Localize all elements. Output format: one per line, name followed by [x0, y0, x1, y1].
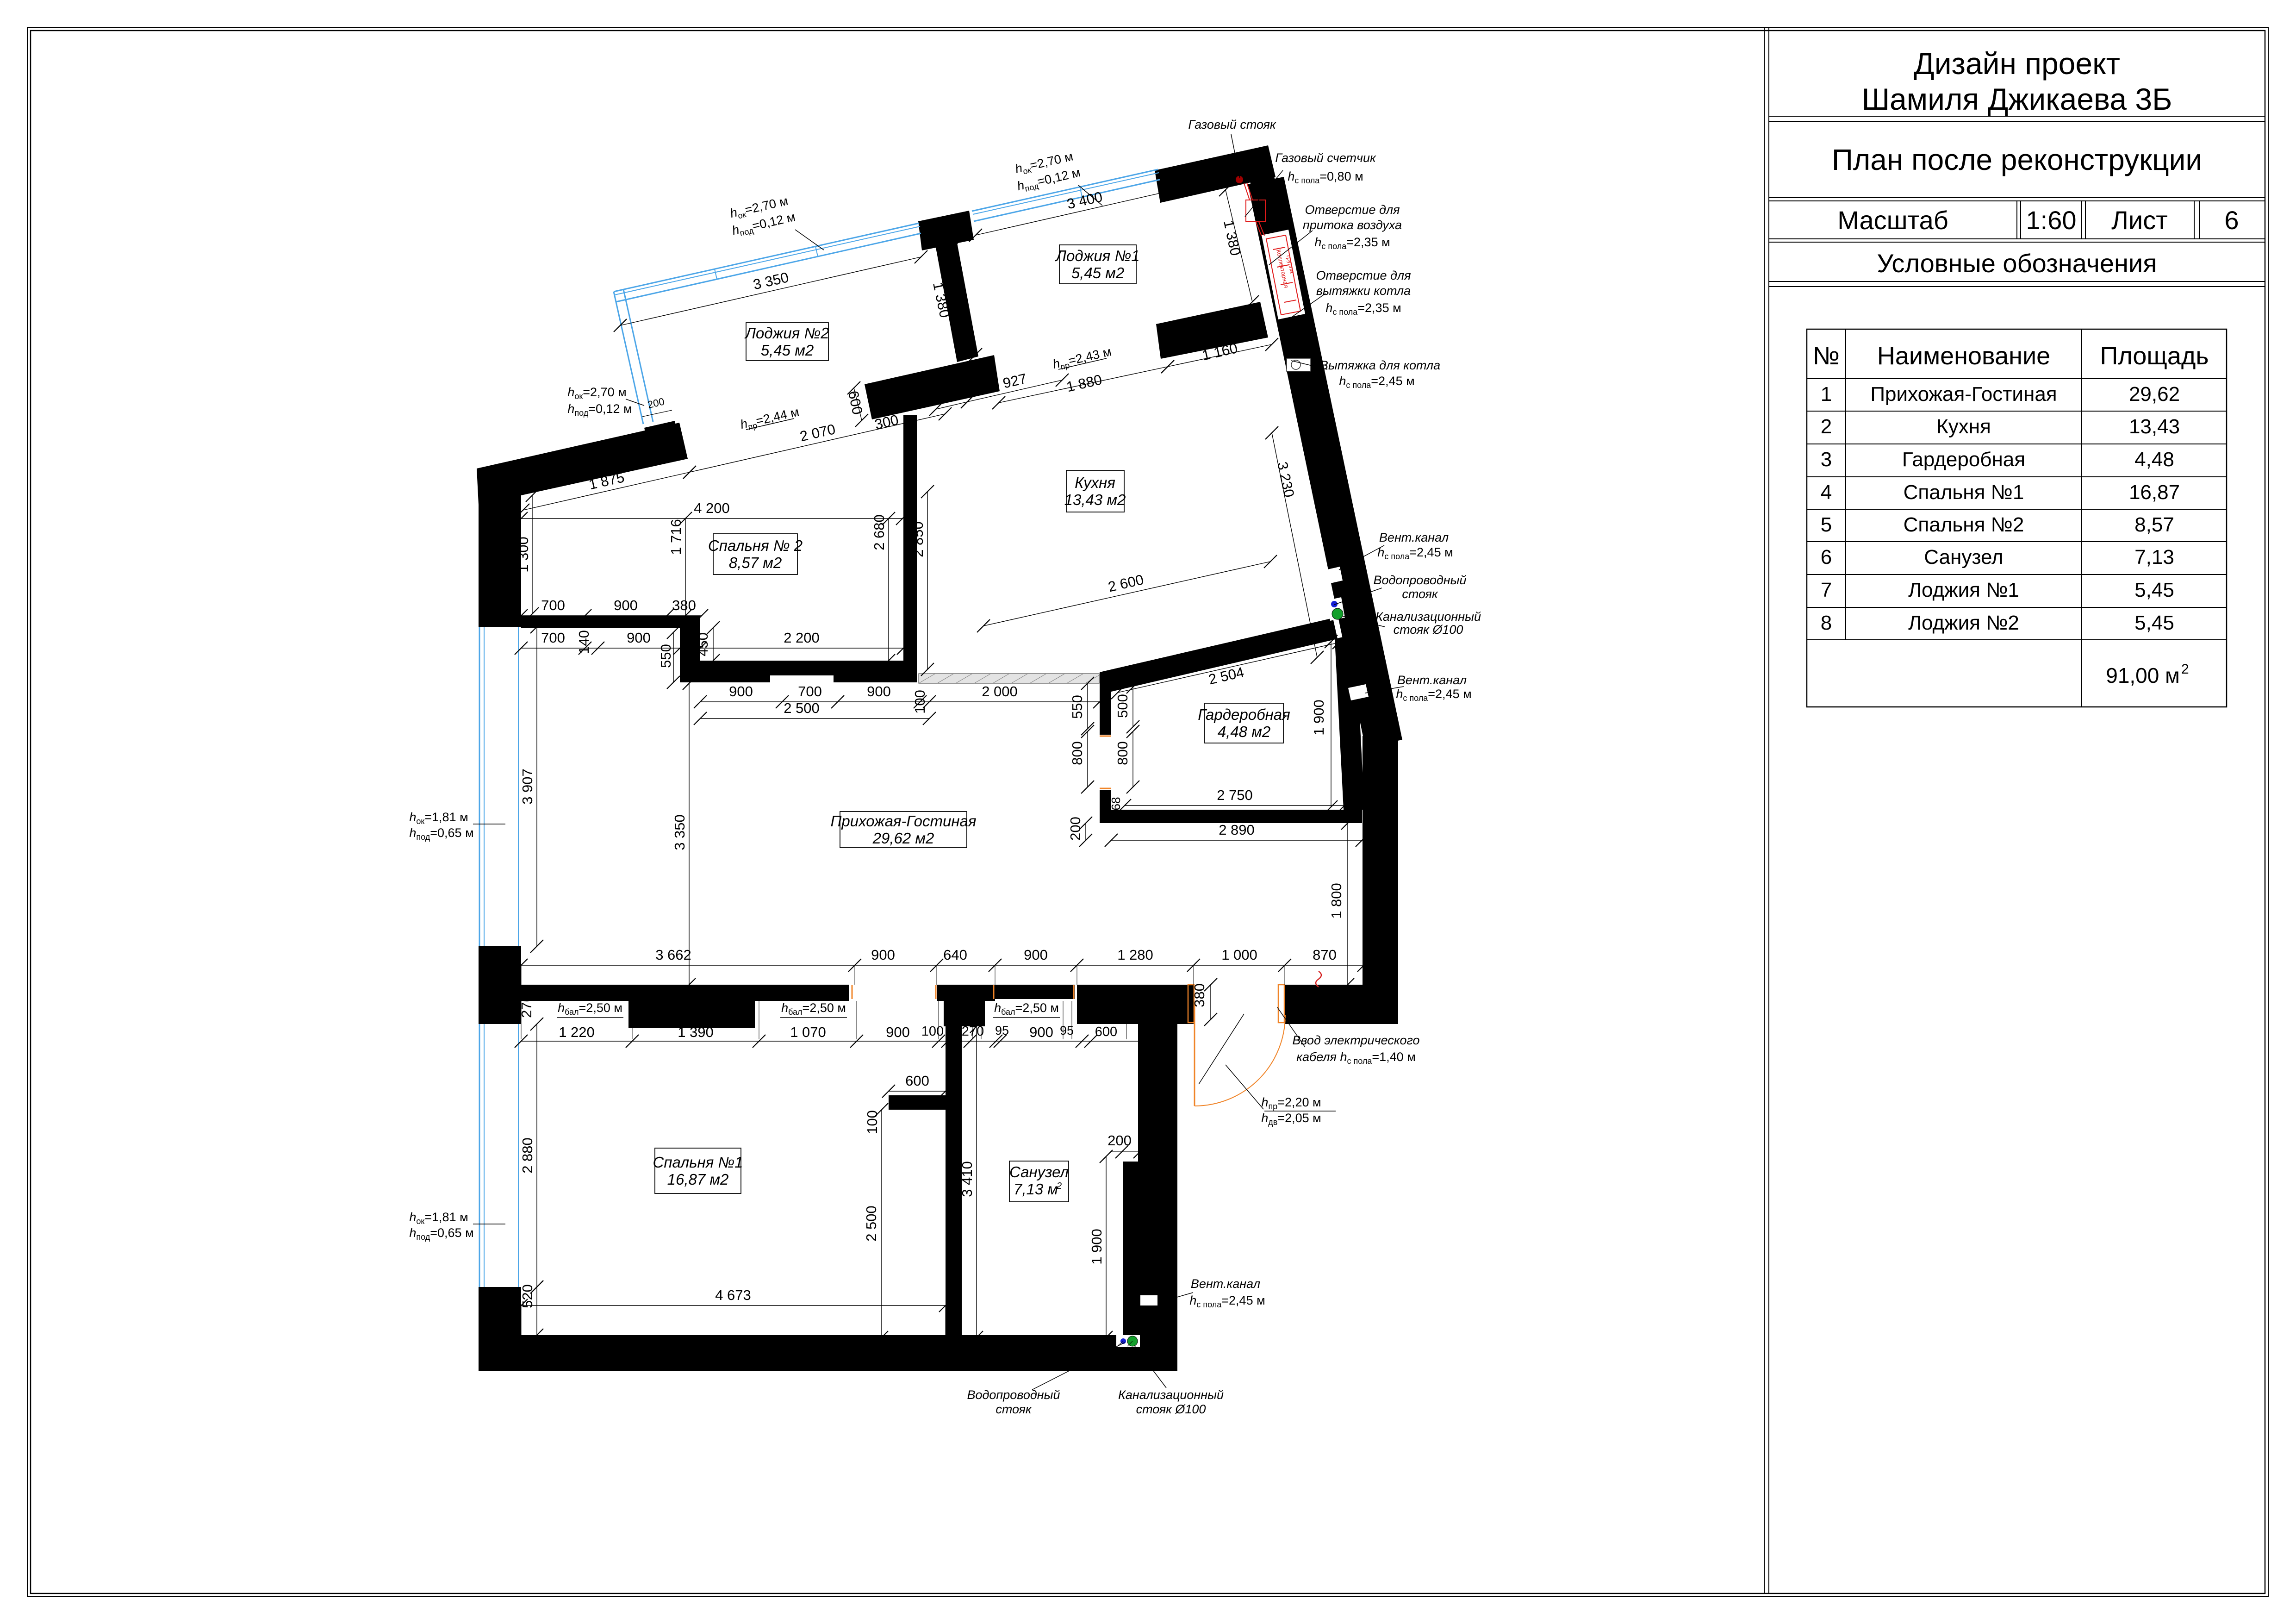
svg-text:16,87 м2: 16,87 м2	[667, 1171, 729, 1188]
svg-text:2 000: 2 000	[982, 683, 1018, 700]
svg-text:стояк: стояк	[996, 1402, 1032, 1416]
svg-text:Спальня № 2: Спальня № 2	[708, 537, 803, 554]
svg-text:550: 550	[1069, 695, 1085, 719]
svg-text:Площадь: Площадь	[2100, 342, 2209, 370]
svg-text:4,48 м2: 4,48 м2	[1218, 723, 1270, 740]
svg-text:Водопроводный: Водопроводный	[967, 1388, 1060, 1402]
svg-text:Водопроводный: Водопроводный	[1373, 573, 1466, 587]
svg-text:29,62 м2: 29,62 м2	[872, 830, 934, 847]
svg-text:Отверстие для: Отверстие для	[1305, 203, 1400, 217]
svg-text:2 200: 2 200	[784, 630, 820, 646]
svg-text:3 410: 3 410	[959, 1161, 975, 1197]
svg-text:2 500: 2 500	[863, 1206, 879, 1242]
svg-text:600: 600	[1095, 1024, 1117, 1039]
svg-text:2: 2	[1821, 415, 1832, 438]
svg-text:План после реконструкции: План после реконструкции	[1832, 143, 2202, 176]
svg-text:640: 640	[943, 947, 967, 963]
svg-text:900: 900	[1029, 1024, 1053, 1040]
svg-text:5,45 м2: 5,45 м2	[1071, 264, 1124, 281]
svg-text:Вент.канал: Вент.канал	[1379, 531, 1449, 544]
svg-text:1 300: 1 300	[515, 537, 531, 573]
svg-text:1 716: 1 716	[668, 519, 684, 555]
svg-text:2 850: 2 850	[910, 521, 926, 557]
svg-text:450: 450	[695, 632, 711, 656]
svg-text:900: 900	[729, 683, 753, 700]
svg-text:800: 800	[1069, 741, 1085, 765]
svg-text:270: 270	[962, 1024, 984, 1039]
svg-text:380: 380	[672, 597, 696, 613]
svg-text:Лоджия №1: Лоджия №1	[1055, 247, 1139, 264]
svg-text:вытяжки котла: вытяжки котла	[1316, 284, 1411, 298]
svg-text:стояк: стояк	[1402, 587, 1438, 601]
svg-text:7,13 м: 7,13 м	[1014, 1181, 1058, 1198]
svg-text:200: 200	[1067, 817, 1083, 841]
svg-text:1 280: 1 280	[1117, 947, 1153, 963]
svg-text:29,62: 29,62	[2129, 383, 2180, 406]
svg-text:1 900: 1 900	[1311, 700, 1327, 736]
svg-text:7,13: 7,13	[2134, 546, 2174, 568]
svg-text:95: 95	[1060, 1024, 1074, 1037]
svg-text:6: 6	[2224, 206, 2239, 235]
svg-text:стояк Ø100: стояк Ø100	[1136, 1402, 1206, 1416]
svg-text:1 220: 1 220	[559, 1024, 595, 1040]
svg-text:700: 700	[798, 683, 822, 700]
svg-text:100: 100	[912, 690, 928, 714]
svg-text:Спальня №1: Спальня №1	[653, 1154, 743, 1171]
svg-text:900: 900	[614, 597, 638, 613]
svg-text:Спальня №1: Спальня №1	[1904, 481, 2024, 504]
svg-text:500: 500	[1114, 694, 1131, 718]
svg-text:1 070: 1 070	[790, 1024, 826, 1040]
svg-text:900: 900	[871, 947, 895, 963]
svg-text:Прихожая-Гостиная: Прихожая-Гостиная	[831, 812, 977, 830]
svg-text:5,45: 5,45	[2134, 579, 2174, 601]
svg-text:2 500: 2 500	[784, 700, 820, 716]
svg-text:Гардеробная: Гардеробная	[1198, 706, 1290, 723]
svg-text:2 680: 2 680	[871, 514, 887, 550]
svg-text:600: 600	[905, 1073, 929, 1089]
svg-text:380: 380	[1191, 983, 1207, 1007]
svg-text:4 673: 4 673	[715, 1287, 751, 1303]
svg-text:Прихожая-Гостиная: Прихожая-Гостиная	[1870, 383, 2057, 406]
svg-text:Наименование: Наименование	[1877, 342, 2050, 370]
svg-text:Вытяжка для котла: Вытяжка для котла	[1320, 358, 1440, 372]
svg-text:140: 140	[576, 630, 592, 654]
svg-text:6: 6	[1821, 546, 1832, 568]
svg-text:2 880: 2 880	[519, 1137, 535, 1174]
svg-text:Кухня: Кухня	[1075, 474, 1115, 491]
svg-text:200: 200	[1108, 1132, 1132, 1149]
svg-text:Лоджия №1: Лоджия №1	[1908, 579, 2019, 601]
svg-text:700: 700	[541, 597, 565, 613]
svg-text:270: 270	[518, 994, 535, 1018]
svg-text:Санузел: Санузел	[1009, 1163, 1069, 1181]
svg-text:8: 8	[1821, 612, 1832, 634]
svg-text:3 350: 3 350	[672, 814, 688, 850]
svg-text:Лоджия №2: Лоджия №2	[1908, 612, 2019, 634]
svg-text:№: №	[1813, 342, 1840, 370]
svg-text:13,43 м2: 13,43 м2	[1064, 491, 1126, 508]
svg-text:3 907: 3 907	[519, 768, 535, 805]
svg-text:Ввод электрического: Ввод электрического	[1292, 1033, 1419, 1047]
svg-text:3: 3	[1821, 448, 1832, 471]
svg-text:2: 2	[1056, 1181, 1062, 1191]
svg-text:1: 1	[1821, 383, 1832, 406]
svg-text:Газовый счетчик: Газовый счетчик	[1275, 151, 1376, 165]
svg-text:Вент.канал: Вент.канал	[1397, 673, 1467, 687]
svg-text:Лист: Лист	[2111, 206, 2168, 235]
svg-text:5,45: 5,45	[2134, 612, 2174, 634]
svg-text:800: 800	[1114, 741, 1131, 765]
svg-text:Шамиля Джикаева 3Б: Шамиля Джикаева 3Б	[1862, 82, 2172, 116]
svg-text:4: 4	[1821, 481, 1832, 504]
svg-text:2 890: 2 890	[1219, 822, 1255, 838]
svg-text:Дизайн проект: Дизайн проект	[1914, 46, 2120, 81]
svg-text:Лоджия №2: Лоджия №2	[744, 325, 829, 342]
svg-text:Масштаб: Масштаб	[1837, 206, 1948, 235]
svg-text:91,00 м: 91,00 м	[2106, 663, 2180, 687]
svg-text:4,48: 4,48	[2134, 448, 2174, 471]
svg-text:900: 900	[867, 683, 891, 700]
svg-text:Канализационный: Канализационный	[1118, 1388, 1224, 1402]
svg-text:900: 900	[627, 630, 651, 646]
svg-text:Условные обозначения: Условные обозначения	[1877, 249, 2157, 278]
svg-text:13,43: 13,43	[2129, 415, 2180, 438]
svg-text:1:60: 1:60	[2026, 206, 2077, 235]
svg-text:7: 7	[1821, 579, 1832, 601]
svg-text:Гардеробная: Гардеробная	[1902, 448, 2025, 471]
svg-text:1 390: 1 390	[678, 1024, 714, 1040]
svg-text:2: 2	[2181, 662, 2189, 677]
svg-text:Канализационный: Канализационный	[1375, 610, 1481, 624]
svg-text:100: 100	[864, 1110, 880, 1134]
svg-text:5: 5	[1821, 513, 1832, 536]
svg-text:стояк Ø100: стояк Ø100	[1394, 623, 1463, 637]
svg-text:Кухня: Кухня	[1936, 415, 1991, 438]
svg-text:700: 700	[541, 630, 565, 646]
svg-text:100: 100	[921, 1024, 944, 1039]
svg-text:900: 900	[886, 1024, 910, 1040]
svg-text:1 800: 1 800	[1328, 883, 1344, 919]
svg-text:1 000: 1 000	[1221, 947, 1257, 963]
svg-text:Спальня №2: Спальня №2	[1904, 513, 2024, 536]
svg-text:5,45 м2: 5,45 м2	[761, 342, 814, 359]
svg-text:8,57: 8,57	[2134, 513, 2174, 536]
svg-text:3 662: 3 662	[655, 947, 691, 963]
svg-text:1 900: 1 900	[1089, 1229, 1105, 1265]
svg-text:Санузел: Санузел	[1924, 546, 2003, 568]
svg-text:8,57 м2: 8,57 м2	[729, 554, 782, 571]
svg-text:16,87: 16,87	[2129, 481, 2180, 504]
svg-text:4 200: 4 200	[694, 500, 730, 516]
svg-text:притока воздуха: притока воздуха	[1303, 218, 1402, 232]
svg-text:550: 550	[658, 644, 674, 668]
svg-text:2 750: 2 750	[1217, 787, 1253, 803]
svg-text:Газовый стояк: Газовый стояк	[1188, 118, 1276, 131]
svg-text:Отверстие для: Отверстие для	[1316, 269, 1411, 282]
svg-text:900: 900	[1024, 947, 1048, 963]
svg-text:Вент.канал: Вент.канал	[1191, 1277, 1260, 1291]
svg-text:68: 68	[1109, 797, 1123, 811]
svg-text:870: 870	[1313, 947, 1337, 963]
svg-text:95: 95	[995, 1024, 1009, 1037]
